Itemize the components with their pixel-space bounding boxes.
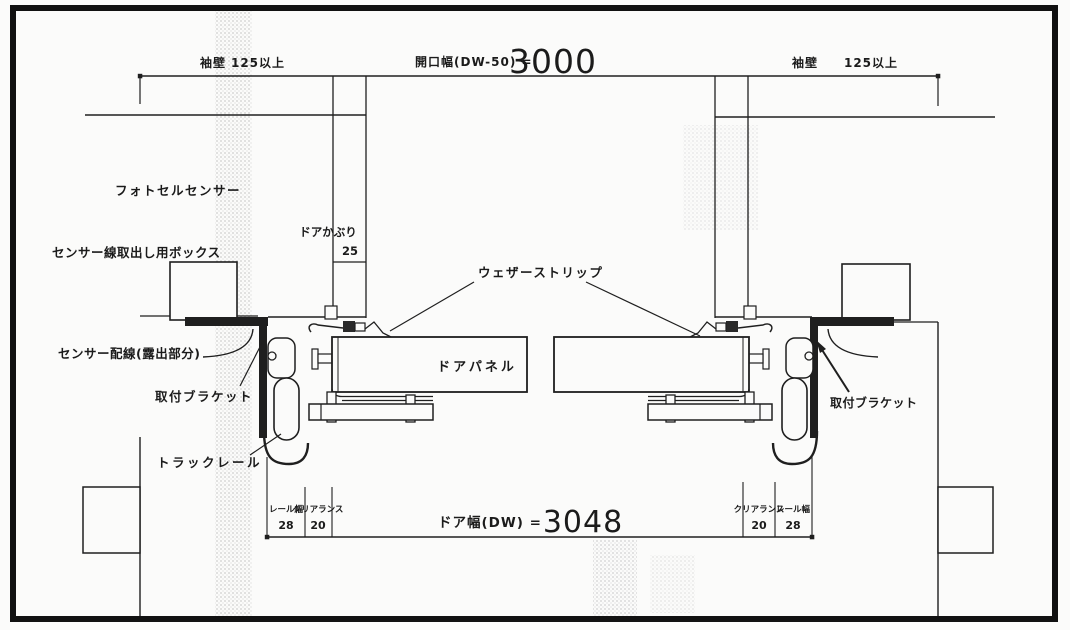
value-clearance-right: 20 [751, 519, 767, 532]
label-mounting-bracket-right: 取付ブラケット [830, 395, 918, 410]
value-rail-width-right: 28 [785, 519, 800, 532]
hanger-clip-right [716, 323, 726, 331]
mounting-bracket-bar-horizontal-right [812, 317, 894, 326]
mounting-bracket-bar-vertical-left [259, 317, 267, 438]
weather-strip-curl-right [738, 324, 772, 332]
track-rail-capsule-left [274, 378, 299, 440]
door-panel-assembly-right [554, 306, 772, 422]
sensor-outlet-box-right [842, 264, 910, 320]
door-panel-right [554, 337, 749, 392]
label-rail-width-right: レール幅 [776, 504, 811, 515]
floor-box-right [938, 487, 993, 553]
guide-bolt-head-left [312, 349, 318, 369]
label-photocell-sensor: フォトセルセンサー [115, 183, 241, 198]
leader-weather-strip-right [586, 282, 700, 336]
hanger-block-right [726, 321, 738, 332]
leader-weather-strip-left [390, 282, 474, 331]
track-rail-capsule-right [782, 378, 807, 440]
floor-box-left [83, 487, 140, 553]
mounting-bracket-bar-horizontal-left [185, 317, 268, 326]
value-wing-wall-right: 125以上 [844, 55, 898, 70]
bracket-bolt-left [268, 352, 276, 360]
value-opening-width: 3000 [509, 42, 597, 81]
label-sensor-outlet-box: センサー線取出し用ボックス [52, 245, 221, 260]
label-weather-strip: ウェザーストリップ [478, 265, 603, 280]
weather-strip-zigzag-left [365, 322, 391, 337]
stipple-band-top-right [683, 125, 758, 230]
label-wing-wall-right: 袖壁 [792, 55, 818, 70]
weather-strip-zigzag-right [690, 322, 716, 337]
hanger-roller-left [325, 306, 337, 319]
stipple-band-bottom-center [593, 540, 637, 618]
top-dimension: 袖壁 125以上 開口幅(DW-50) = 3000 袖壁 125以上 [138, 42, 941, 106]
hanger-clip-left [355, 323, 365, 331]
label-door-panel: ドアパネル [437, 360, 517, 375]
value-rail-width-left: 28 [278, 519, 293, 532]
technical-drawing-sliding-door-plan: 袖壁 125以上 開口幅(DW-50) = 3000 袖壁 125以上 ドアかぶ… [0, 0, 1070, 630]
belt-rail-right [648, 404, 772, 420]
sensor-outlet-box-left [170, 262, 237, 320]
label-mounting-bracket-left: 取付ブラケット [155, 389, 253, 404]
label-track-rail: トラックレール [157, 455, 262, 470]
label-sensor-wiring: センサー配線(露出部分) [58, 346, 200, 361]
guide-bolt-stem-left [318, 354, 332, 363]
value-wing-wall-left: 125以上 [231, 55, 285, 70]
guide-bolt-head-right [763, 349, 769, 369]
value-door-overlap: 25 [342, 244, 358, 258]
label-door-overlap: ドアかぶり [299, 225, 357, 239]
hanger-block-left [343, 321, 355, 332]
label-door-width: ドア幅(DW) = [438, 514, 542, 531]
value-door-width: 3048 [543, 505, 623, 540]
bottom-dimension: レール幅 28 クリアランス 20 ドア幅(DW) = 3048 クリアランス … [265, 457, 815, 540]
bracket-assembly-right [773, 317, 894, 464]
value-clearance-left: 20 [310, 519, 326, 532]
drawing-canvas: 袖壁 125以上 開口幅(DW-50) = 3000 袖壁 125以上 ドアかぶ… [0, 0, 1070, 630]
weather-strip-curl-left [309, 324, 343, 332]
mounting-bracket-bar-vertical-right [810, 317, 818, 438]
sensor-wiring-conduit-arc-right [828, 329, 878, 357]
belt-rail-left [309, 404, 433, 420]
guide-bolt-stem-right [749, 354, 763, 363]
label-clearance-left: クリアランス [293, 504, 344, 515]
bracket-bolt-right [805, 352, 813, 360]
label-wing-wall-left: 袖壁 [200, 55, 226, 70]
hanger-roller-right [744, 306, 756, 319]
stipple-band-bottom-right [650, 555, 695, 613]
